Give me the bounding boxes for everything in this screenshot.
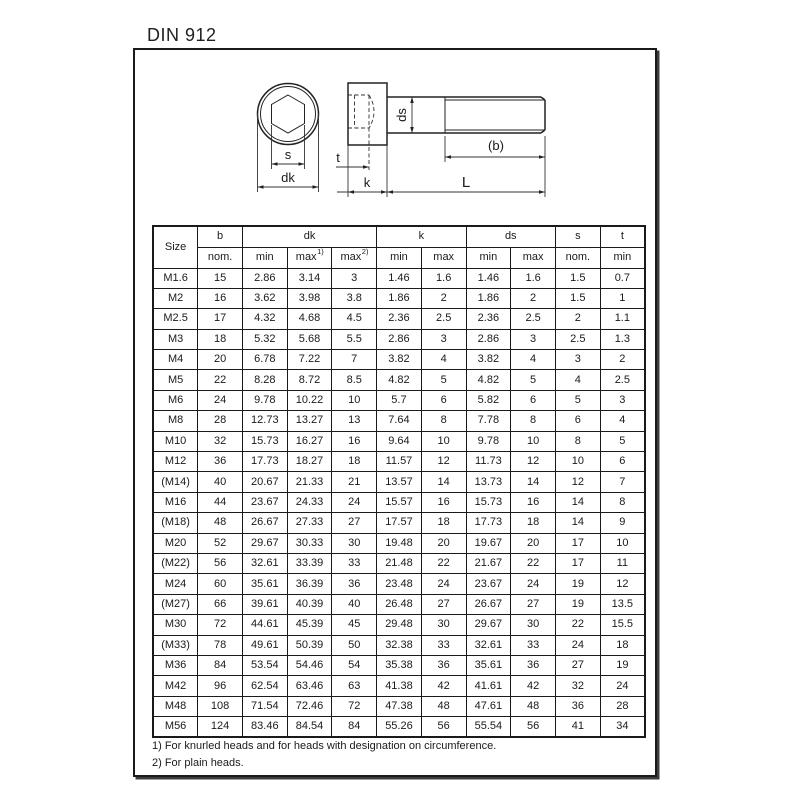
table-cell: 24 xyxy=(511,574,556,594)
table-cell: M42 xyxy=(153,676,198,696)
table-cell: 32.38 xyxy=(377,635,422,655)
table-cell: 10 xyxy=(421,431,466,451)
table-cell: 124 xyxy=(198,717,243,737)
table-cell: 27 xyxy=(555,655,600,675)
socket-cone xyxy=(369,95,374,128)
table-cell: 22 xyxy=(421,553,466,573)
table-cell: 4.32 xyxy=(242,309,287,329)
table-cell: 6 xyxy=(600,452,645,472)
table-cell: 5.5 xyxy=(332,329,377,349)
table-cell: 9.78 xyxy=(242,390,287,410)
col-subheader-dk-max1: max1) xyxy=(287,247,332,268)
table-cell: 21.33 xyxy=(287,472,332,492)
table-row: (M18)4826.6727.332717.571817.7318149 xyxy=(153,513,645,533)
table-cell: 78 xyxy=(198,635,243,655)
table-cell: 2 xyxy=(421,288,466,308)
col-subheader-ds-min: min xyxy=(466,247,511,268)
table-cell: 84 xyxy=(332,717,377,737)
header-group-row: Size b dk k ds s t xyxy=(153,226,645,247)
table-cell: 27 xyxy=(511,594,556,614)
table-row: M307244.6145.394529.483029.67302215.5 xyxy=(153,615,645,635)
table-row: M5228.288.728.54.8254.82542.5 xyxy=(153,370,645,390)
footnote-marker-2: 2) xyxy=(362,247,369,256)
table-cell: 21.67 xyxy=(466,553,511,573)
table-cell: 9.78 xyxy=(466,431,511,451)
table-cell: 72.46 xyxy=(287,696,332,716)
table-cell: 44 xyxy=(198,492,243,512)
dim-ds: ds xyxy=(394,97,414,133)
table-cell: 49.61 xyxy=(242,635,287,655)
table-cell: 27.33 xyxy=(287,513,332,533)
table-cell: 8 xyxy=(421,411,466,431)
table-cell: 23.48 xyxy=(377,574,422,594)
table-cell: (M18) xyxy=(153,513,198,533)
table-cell: 33.39 xyxy=(287,553,332,573)
table-cell: 8 xyxy=(555,431,600,451)
table-row: M6249.7810.22105.765.82653 xyxy=(153,390,645,410)
table-cell: 9.64 xyxy=(377,431,422,451)
table-cell: 3.98 xyxy=(287,288,332,308)
table-cell: 8 xyxy=(511,411,556,431)
table-row: M123617.7318.271811.571211.7312106 xyxy=(153,452,645,472)
dim-k: k xyxy=(337,145,387,197)
table-cell: 3.8 xyxy=(332,288,377,308)
table-cell: 2 xyxy=(511,288,556,308)
table-cell: 2.36 xyxy=(466,309,511,329)
col-subheader-k-max: max xyxy=(421,247,466,268)
table-cell: 23.67 xyxy=(242,492,287,512)
table-cell: 18 xyxy=(600,635,645,655)
col-subheader-label: max xyxy=(296,251,317,263)
table-cell: 17.73 xyxy=(466,513,511,533)
col-header-s: s xyxy=(555,226,600,247)
table-cell: 19.48 xyxy=(377,533,422,553)
table-cell: 24 xyxy=(332,492,377,512)
table-cell: 27 xyxy=(421,594,466,614)
table-cell: 12 xyxy=(511,452,556,472)
table-cell: M2 xyxy=(153,288,198,308)
page-title: DIN 912 xyxy=(147,25,217,46)
table-cell: 30 xyxy=(421,615,466,635)
table-cell: 17.73 xyxy=(242,452,287,472)
table-row: M103215.7316.27169.64109.781085 xyxy=(153,431,645,451)
table-cell: (M33) xyxy=(153,635,198,655)
table-cell: 71.54 xyxy=(242,696,287,716)
table-cell: 22 xyxy=(198,370,243,390)
table-cell: 33 xyxy=(511,635,556,655)
table-cell: 18 xyxy=(511,513,556,533)
table-cell: 17.57 xyxy=(377,513,422,533)
table-cell: 12 xyxy=(421,452,466,472)
screw-thread xyxy=(445,97,545,133)
table-cell: 13.57 xyxy=(377,472,422,492)
table-cell: 72 xyxy=(198,615,243,635)
table-cell: 30 xyxy=(332,533,377,553)
table-cell: 35.61 xyxy=(242,574,287,594)
table-cell: 16 xyxy=(332,431,377,451)
table-cell: 13.73 xyxy=(466,472,511,492)
table-cell: 1.5 xyxy=(555,268,600,288)
table-cell: 34 xyxy=(600,717,645,737)
col-subheader-dk-max2: max2) xyxy=(332,247,377,268)
table-cell: 4 xyxy=(600,411,645,431)
col-subheader-ds-max: max xyxy=(511,247,556,268)
table-cell: 16.27 xyxy=(287,431,332,451)
table-cell: 41 xyxy=(555,717,600,737)
table-row: M4206.787.2273.8243.82432 xyxy=(153,350,645,370)
table-cell: 8.5 xyxy=(332,370,377,390)
table-cell: 18 xyxy=(198,329,243,349)
col-subheader-b-nom: nom. xyxy=(198,247,243,268)
table-cell: 54 xyxy=(332,655,377,675)
table-cell: 5.82 xyxy=(466,390,511,410)
table-cell: 1.6 xyxy=(511,268,556,288)
table-cell: 30 xyxy=(511,615,556,635)
table-cell: 11.57 xyxy=(377,452,422,472)
label-ds: ds xyxy=(394,108,409,122)
table-cell: 40.39 xyxy=(287,594,332,614)
table-cell: 19 xyxy=(600,655,645,675)
table-cell: 10 xyxy=(600,533,645,553)
col-header-size: Size xyxy=(153,226,198,268)
table-cell: 5 xyxy=(421,370,466,390)
table-cell: 20.67 xyxy=(242,472,287,492)
table-cell: 55.54 xyxy=(466,717,511,737)
table-cell: 20 xyxy=(198,350,243,370)
table-cell: M24 xyxy=(153,574,198,594)
footnotes: 1) For knurled heads and for heads with … xyxy=(152,738,496,772)
table-cell: 27 xyxy=(332,513,377,533)
table-cell: 10 xyxy=(555,452,600,472)
table-cell: 36 xyxy=(421,655,466,675)
table-row: M205229.6730.333019.482019.67201710 xyxy=(153,533,645,553)
table-cell: 4 xyxy=(555,370,600,390)
table-cell: 16 xyxy=(421,492,466,512)
table-cell: 39.61 xyxy=(242,594,287,614)
table-row: M2.5174.324.684.52.362.52.362.521.1 xyxy=(153,309,645,329)
table-cell: 3.62 xyxy=(242,288,287,308)
table-cell: 7 xyxy=(332,350,377,370)
table-cell: 24 xyxy=(555,635,600,655)
table-cell: M2.5 xyxy=(153,309,198,329)
technical-drawing: s dk xyxy=(135,50,655,225)
table-cell: 1.6 xyxy=(421,268,466,288)
table-cell: 5.32 xyxy=(242,329,287,349)
table-cell: 24 xyxy=(421,574,466,594)
table-cell: 16 xyxy=(511,492,556,512)
table-cell: 1.5 xyxy=(555,288,600,308)
table-cell: 14 xyxy=(421,472,466,492)
table-cell: 32.61 xyxy=(242,553,287,573)
screw-side-view: ds (b) t k xyxy=(336,83,545,197)
table-row: M429662.5463.466341.384241.61423224 xyxy=(153,676,645,696)
table-cell: 48 xyxy=(198,513,243,533)
table-cell: 40 xyxy=(332,594,377,614)
table-cell: 1.1 xyxy=(600,309,645,329)
table-cell: M36 xyxy=(153,655,198,675)
label-t: t xyxy=(336,150,340,165)
col-subheader-dk-min: min xyxy=(242,247,287,268)
table-cell: 36 xyxy=(332,574,377,594)
table-row: M246035.6136.393623.482423.67241912 xyxy=(153,574,645,594)
table-cell: 32 xyxy=(555,676,600,696)
table-cell: 5 xyxy=(511,370,556,390)
label-k: k xyxy=(364,175,371,190)
screw-head xyxy=(348,83,387,145)
table-cell: 7.22 xyxy=(287,350,332,370)
table-cell: 42 xyxy=(421,676,466,696)
col-header-t: t xyxy=(600,226,645,247)
table-cell: 10 xyxy=(332,390,377,410)
table-cell: 50 xyxy=(332,635,377,655)
col-subheader-t-min: min xyxy=(600,247,645,268)
table-cell: M56 xyxy=(153,717,198,737)
table-cell: 42 xyxy=(511,676,556,696)
table-cell: 11 xyxy=(600,553,645,573)
table-cell: 7.64 xyxy=(377,411,422,431)
table-cell: 12 xyxy=(555,472,600,492)
table-cell: 24 xyxy=(600,676,645,696)
label-L: L xyxy=(462,174,470,191)
table-cell: 63.46 xyxy=(287,676,332,696)
table-cell: 3.14 xyxy=(287,268,332,288)
table-cell: 19 xyxy=(555,594,600,614)
table-cell: M5 xyxy=(153,370,198,390)
table-cell: 36 xyxy=(555,696,600,716)
table-cell: 1.86 xyxy=(466,288,511,308)
table-cell: 13.27 xyxy=(287,411,332,431)
table-cell: 16 xyxy=(198,288,243,308)
table-cell: 22 xyxy=(555,615,600,635)
table-row: M82812.7313.27137.6487.78864 xyxy=(153,411,645,431)
table-cell: 17 xyxy=(198,309,243,329)
table-row: (M22)5632.6133.393321.482221.67221711 xyxy=(153,553,645,573)
table-cell: 2.5 xyxy=(511,309,556,329)
table-cell: 0.7 xyxy=(600,268,645,288)
table-cell: 8.72 xyxy=(287,370,332,390)
table-cell: 56 xyxy=(511,717,556,737)
table-cell: 21 xyxy=(332,472,377,492)
table-cell: 29.48 xyxy=(377,615,422,635)
table-cell: 72 xyxy=(332,696,377,716)
table-cell: 26.48 xyxy=(377,594,422,614)
head-front-view: s dk xyxy=(258,84,319,193)
table-cell: 60 xyxy=(198,574,243,594)
table-cell: 24.33 xyxy=(287,492,332,512)
table-cell: 10.22 xyxy=(287,390,332,410)
table-cell: 20 xyxy=(421,533,466,553)
table-cell: 29.67 xyxy=(242,533,287,553)
table-cell: 30.33 xyxy=(287,533,332,553)
table-cell: 28 xyxy=(198,411,243,431)
table-cell: 29.67 xyxy=(466,615,511,635)
table-cell: 28 xyxy=(600,696,645,716)
table-cell: 12.73 xyxy=(242,411,287,431)
hex-socket xyxy=(272,95,305,133)
content-frame: s dk xyxy=(133,48,657,777)
table-cell: M8 xyxy=(153,411,198,431)
table-cell: 5.68 xyxy=(287,329,332,349)
table-cell: 5 xyxy=(600,431,645,451)
table-cell: 1.86 xyxy=(377,288,422,308)
table-cell: M48 xyxy=(153,696,198,716)
table-cell: 56 xyxy=(198,553,243,573)
label-dk: dk xyxy=(281,170,295,185)
table-cell: 17 xyxy=(555,553,600,573)
table-row: (M14)4020.6721.332113.571413.7314127 xyxy=(153,472,645,492)
table-cell: 2.86 xyxy=(377,329,422,349)
table-cell: M10 xyxy=(153,431,198,451)
table-cell: 2 xyxy=(600,350,645,370)
table-cell: 32.61 xyxy=(466,635,511,655)
table-cell: 18.27 xyxy=(287,452,332,472)
table-cell: 14 xyxy=(511,472,556,492)
table-cell: 5 xyxy=(555,390,600,410)
table-cell: 21.48 xyxy=(377,553,422,573)
table-cell: 15.57 xyxy=(377,492,422,512)
table-cell: M12 xyxy=(153,452,198,472)
table-cell: 14 xyxy=(555,492,600,512)
table-cell: 14 xyxy=(555,513,600,533)
table-row: M368453.5454.465435.383635.61362719 xyxy=(153,655,645,675)
table-cell: 17 xyxy=(555,533,600,553)
table-cell: M3 xyxy=(153,329,198,349)
table-cell: 7.78 xyxy=(466,411,511,431)
table-cell: 41.38 xyxy=(377,676,422,696)
table-cell: 44.61 xyxy=(242,615,287,635)
table-cell: 35.61 xyxy=(466,655,511,675)
table-cell: 48 xyxy=(511,696,556,716)
table-cell: 3 xyxy=(421,329,466,349)
table-cell: 33 xyxy=(421,635,466,655)
table-cell: 48 xyxy=(421,696,466,716)
table-cell: 4.5 xyxy=(332,309,377,329)
table-cell: 45 xyxy=(332,615,377,635)
table-cell: M30 xyxy=(153,615,198,635)
table-cell: 3 xyxy=(332,268,377,288)
table-row: M2163.623.983.81.8621.8621.51 xyxy=(153,288,645,308)
table-cell: 32 xyxy=(198,431,243,451)
table-cell: 10 xyxy=(511,431,556,451)
table-cell: 2.86 xyxy=(242,268,287,288)
table-header: Size b dk k ds s t nom. min max1) max2) … xyxy=(153,226,645,268)
footnote-2: 2) For plain heads. xyxy=(152,755,496,772)
table-cell: 13.5 xyxy=(600,594,645,614)
dim-t: t xyxy=(336,150,369,169)
table-cell: 6 xyxy=(421,390,466,410)
table-row: M1.6152.863.1431.461.61.461.61.50.7 xyxy=(153,268,645,288)
table-cell: 41.61 xyxy=(466,676,511,696)
table-cell: 3.82 xyxy=(377,350,422,370)
table-cell: 55.26 xyxy=(377,717,422,737)
table-cell: 52 xyxy=(198,533,243,553)
col-subheader-s-nom: nom. xyxy=(555,247,600,268)
col-header-ds: ds xyxy=(466,226,555,247)
table-cell: 18 xyxy=(421,513,466,533)
table-cell: M20 xyxy=(153,533,198,553)
table-cell: 47.38 xyxy=(377,696,422,716)
table-cell: 4 xyxy=(511,350,556,370)
table-cell: 13 xyxy=(332,411,377,431)
footnote-1: 1) For knurled heads and for heads with … xyxy=(152,738,496,755)
head-outer-circle xyxy=(258,84,319,145)
table-cell: 63 xyxy=(332,676,377,696)
dimension-table: Size b dk k ds s t nom. min max1) max2) … xyxy=(152,225,646,738)
table-cell: 66 xyxy=(198,594,243,614)
table-cell: 15.73 xyxy=(242,431,287,451)
table-row: M3185.325.685.52.8632.8632.51.3 xyxy=(153,329,645,349)
table-cell: 5.7 xyxy=(377,390,422,410)
label-b: (b) xyxy=(488,138,504,153)
table-cell: 23.67 xyxy=(466,574,511,594)
table-cell: 11.73 xyxy=(466,452,511,472)
table-cell: 108 xyxy=(198,696,243,716)
table-cell: 36.39 xyxy=(287,574,332,594)
table-cell: 53.54 xyxy=(242,655,287,675)
table-cell: 15 xyxy=(198,268,243,288)
table-cell: 20 xyxy=(511,533,556,553)
col-subheader-k-min: min xyxy=(377,247,422,268)
col-subheader-label: max xyxy=(341,251,362,263)
table-cell: 33 xyxy=(332,553,377,573)
table-cell: 7 xyxy=(600,472,645,492)
table-cell: 8 xyxy=(600,492,645,512)
table-cell: 96 xyxy=(198,676,243,696)
table-cell: M6 xyxy=(153,390,198,410)
table-cell: 3 xyxy=(555,350,600,370)
table-cell: 26.67 xyxy=(242,513,287,533)
header-sub-row: nom. min max1) max2) min max min max nom… xyxy=(153,247,645,268)
table-cell: 4 xyxy=(421,350,466,370)
table-cell: 4.68 xyxy=(287,309,332,329)
table-cell: 2.36 xyxy=(377,309,422,329)
table-cell: 26.67 xyxy=(466,594,511,614)
table-row: M5612483.4684.548455.265655.54564134 xyxy=(153,717,645,737)
dim-s: s xyxy=(272,125,305,169)
spec-table-body: M1.6152.863.1431.461.61.461.61.50.7M2163… xyxy=(153,268,645,737)
table-cell: 83.46 xyxy=(242,717,287,737)
table-cell: 3.82 xyxy=(466,350,511,370)
table-cell: 6.78 xyxy=(242,350,287,370)
table-cell: 24 xyxy=(198,390,243,410)
col-header-b: b xyxy=(198,226,243,247)
table-cell: 84 xyxy=(198,655,243,675)
table-cell: 8.28 xyxy=(242,370,287,390)
table-cell: 6 xyxy=(555,411,600,431)
dim-b: (b) xyxy=(445,136,545,162)
table-cell: (M14) xyxy=(153,472,198,492)
footnote-marker-1: 1) xyxy=(317,247,324,256)
table-cell: 2.5 xyxy=(555,329,600,349)
table-cell: 1.3 xyxy=(600,329,645,349)
table-cell: 1.46 xyxy=(377,268,422,288)
label-s: s xyxy=(285,147,292,162)
table-cell: 40 xyxy=(198,472,243,492)
table-cell: (M27) xyxy=(153,594,198,614)
table-row: (M27)6639.6140.394026.482726.67271913.5 xyxy=(153,594,645,614)
table-cell: 19 xyxy=(555,574,600,594)
table-cell: 18 xyxy=(332,452,377,472)
table-cell: 2.5 xyxy=(421,309,466,329)
table-row: M4810871.5472.467247.384847.61483628 xyxy=(153,696,645,716)
table-cell: M1.6 xyxy=(153,268,198,288)
table-cell: (M22) xyxy=(153,553,198,573)
table-cell: 62.54 xyxy=(242,676,287,696)
table-cell: 2 xyxy=(555,309,600,329)
table-cell: 56 xyxy=(421,717,466,737)
table-cell: 3 xyxy=(600,390,645,410)
table-cell: 19.67 xyxy=(466,533,511,553)
